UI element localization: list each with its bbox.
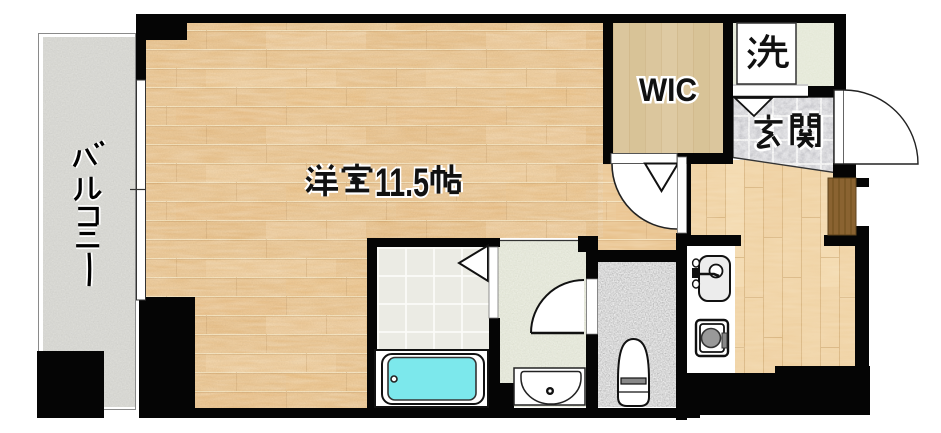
svg-text:WIC: WIC <box>639 72 697 108</box>
svg-text:11.5: 11.5 <box>375 161 429 205</box>
